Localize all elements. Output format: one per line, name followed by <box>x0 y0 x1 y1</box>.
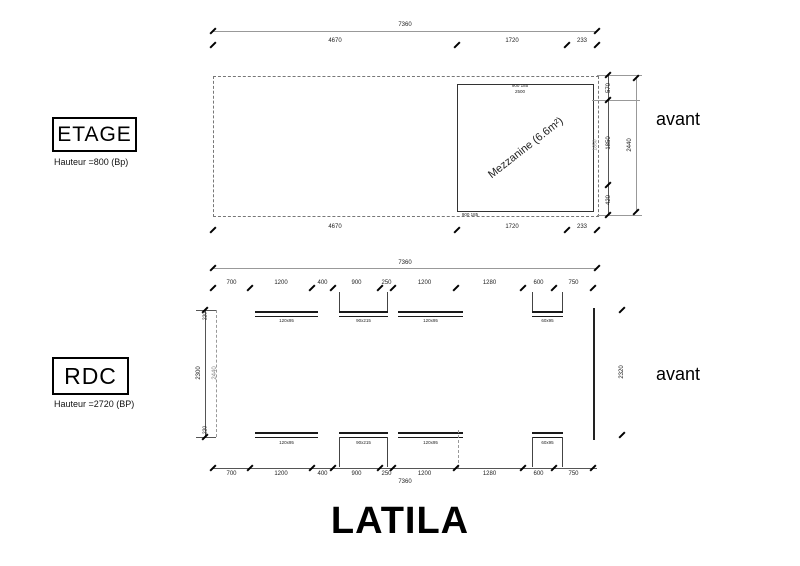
door-jamb <box>532 437 533 467</box>
wall-segment <box>532 432 563 438</box>
rdc-dim-seg: 250 <box>380 471 393 477</box>
rdc-title-box: RDC <box>52 357 129 395</box>
door-jamb <box>562 437 563 467</box>
opening-code: 120x95 <box>263 441 310 446</box>
dim-line <box>205 310 206 437</box>
etage-title-box: ETAGE <box>52 117 137 152</box>
rdc-dim-total-bottom: 7360 <box>213 479 597 485</box>
rdc-title: RDC <box>64 363 117 390</box>
door-jamb <box>532 292 533 311</box>
rdc-dim-seg: 900 <box>333 471 380 477</box>
etage-dim-seg: 233 <box>567 224 597 230</box>
door-jamb <box>339 292 340 311</box>
dim-tick <box>618 431 625 438</box>
rdc-dim-seg: 1200 <box>393 471 456 477</box>
rdc-dim-left-edge-top: 220 <box>204 312 209 320</box>
mezzanine-label: Mezzanine (6.6m²) <box>486 115 566 181</box>
rdc-dim-seg: 400 <box>312 471 333 477</box>
rdc-dim-seg: 600 <box>523 280 554 286</box>
wall-segment <box>255 432 318 438</box>
opening-code: 90x215 <box>345 441 382 446</box>
rdc-dim-seg: 250 <box>380 280 393 286</box>
mezzanine-top-note-line1: 900 185 <box>498 84 543 89</box>
rdc-dim-seg: 700 <box>213 280 250 286</box>
rdc-dim-seg: 1200 <box>393 280 456 286</box>
dim-line <box>213 468 597 469</box>
door-jamb <box>562 292 563 311</box>
wall-segment <box>398 432 463 438</box>
rdc-height-note: Hauteur =2720 (BP) <box>54 399 134 409</box>
etage-dim-total: 7360 <box>213 22 597 28</box>
dim-tick <box>618 306 625 313</box>
rdc-dim-seg: 1280 <box>456 280 523 286</box>
rdc-side-label: avant <box>656 364 700 385</box>
rdc-dim-seg: 400 <box>312 280 333 286</box>
rdc-dim-left-inner: 2440 <box>212 366 218 379</box>
wall-segment <box>398 311 463 317</box>
etage-dim-right-seg: 570 <box>606 83 612 93</box>
etage-dim-right-total: 2440 <box>627 138 633 151</box>
rdc-dim-left: 2300 <box>196 366 202 379</box>
rdc-dim-seg: 1200 <box>250 471 312 477</box>
rdc-dim-seg: 750 <box>554 471 593 477</box>
etage-side-label: avant <box>656 109 700 130</box>
rdc-dim-total-top: 7360 <box>213 260 597 266</box>
dim-line <box>213 31 597 32</box>
dim-tick <box>593 27 600 34</box>
opening-code: 60x95 <box>536 319 559 324</box>
dim-line <box>636 78 637 212</box>
extension-line <box>592 100 640 101</box>
sheet-title: LATILA <box>0 500 800 543</box>
rdc-dim-seg: 750 <box>554 280 593 286</box>
etage-height-note: Hauteur =800 (Bp) <box>54 157 128 167</box>
wall-right <box>593 308 595 440</box>
etage-dim-right-seg: 1850 <box>606 136 612 149</box>
opening-code: 60x95 <box>536 441 559 446</box>
opening-code: 90x215 <box>345 319 382 324</box>
opening-code: 120x95 <box>263 319 310 324</box>
door-jamb <box>387 292 388 311</box>
rdc-dim-right: 2320 <box>619 365 625 378</box>
dim-line <box>213 268 597 269</box>
mezzanine-bottom-note: 900 185 <box>448 213 493 218</box>
opening-code: 120x95 <box>406 441 455 446</box>
door-jamb <box>339 437 340 467</box>
rdc-dim-seg: 900 <box>333 280 380 286</box>
rdc-dim-seg: 700 <box>213 471 250 477</box>
etage-dim-seg: 1720 <box>457 224 567 230</box>
wall-segment <box>255 311 318 317</box>
wall-segment <box>339 311 388 317</box>
etage-dim-right-seg: 420 <box>606 195 612 205</box>
wall-segment <box>532 311 563 317</box>
dashed-line <box>458 430 459 468</box>
mezzanine-inner-height-label: 1850 <box>594 139 599 150</box>
mezzanine-outline: Mezzanine (6.6m²) <box>457 84 594 212</box>
floor-plan-sheet: ETAGE Hauteur =800 (Bp) avant Mezzanine … <box>0 0 800 566</box>
etage-dim-seg: 233 <box>567 38 597 44</box>
wall-segment <box>339 432 388 438</box>
etage-dim-seg: 4670 <box>213 224 457 230</box>
etage-dim-seg: 1720 <box>457 38 567 44</box>
etage-title: ETAGE <box>57 123 132 147</box>
rdc-dim-seg: 1280 <box>456 471 523 477</box>
etage-dim-seg: 4670 <box>213 38 457 44</box>
mezzanine-top-note-line2: 2500 <box>498 90 543 95</box>
door-jamb <box>387 437 388 467</box>
opening-code: 120x95 <box>406 319 455 324</box>
rdc-dim-seg: 600 <box>523 471 554 477</box>
rdc-dim-left-edge-bottom: 220 <box>204 426 209 434</box>
rdc-dim-seg: 1200 <box>250 280 312 286</box>
